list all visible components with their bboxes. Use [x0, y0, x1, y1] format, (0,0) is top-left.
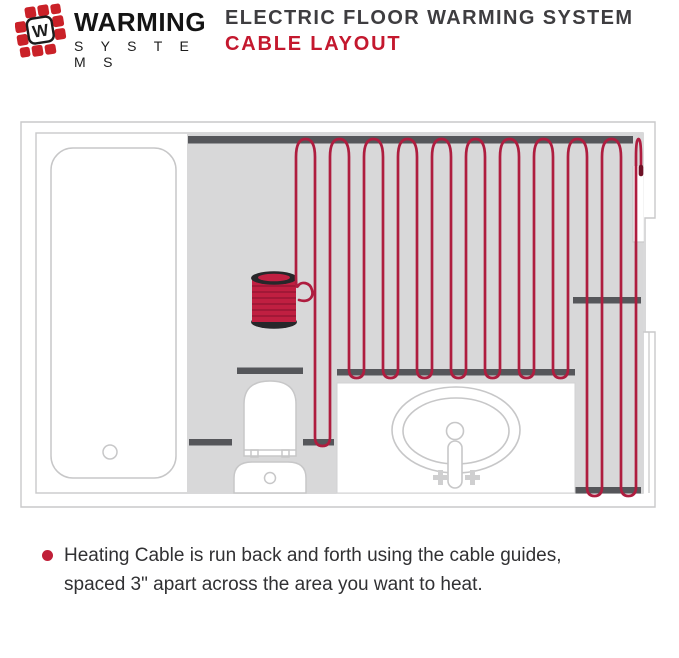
note-line-2: spaced 3" apart across the area you want… — [64, 570, 650, 599]
toilet — [234, 381, 306, 493]
cable-guide-strip — [337, 369, 575, 376]
cable-guide-strip — [237, 368, 303, 375]
toilet-tank — [234, 462, 306, 493]
bathtub — [51, 148, 176, 478]
cable-guide-strip — [573, 297, 641, 304]
bullet-icon — [42, 550, 53, 561]
note-line-1: Heating Cable is run back and forth usin… — [64, 541, 650, 570]
cable-guide-strip — [575, 487, 641, 494]
sink-vanity — [337, 383, 575, 493]
bathtub-drain — [103, 445, 117, 459]
infographic-page: W WARMING S Y S T E M S ELECTRIC FLOOR W… — [0, 0, 679, 658]
toilet-bowl — [244, 381, 296, 456]
note: Heating Cable is run back and forth usin… — [40, 541, 650, 599]
faucet-spout — [448, 441, 462, 488]
cable-guide-strip — [189, 439, 232, 446]
cable-spool — [251, 271, 297, 329]
